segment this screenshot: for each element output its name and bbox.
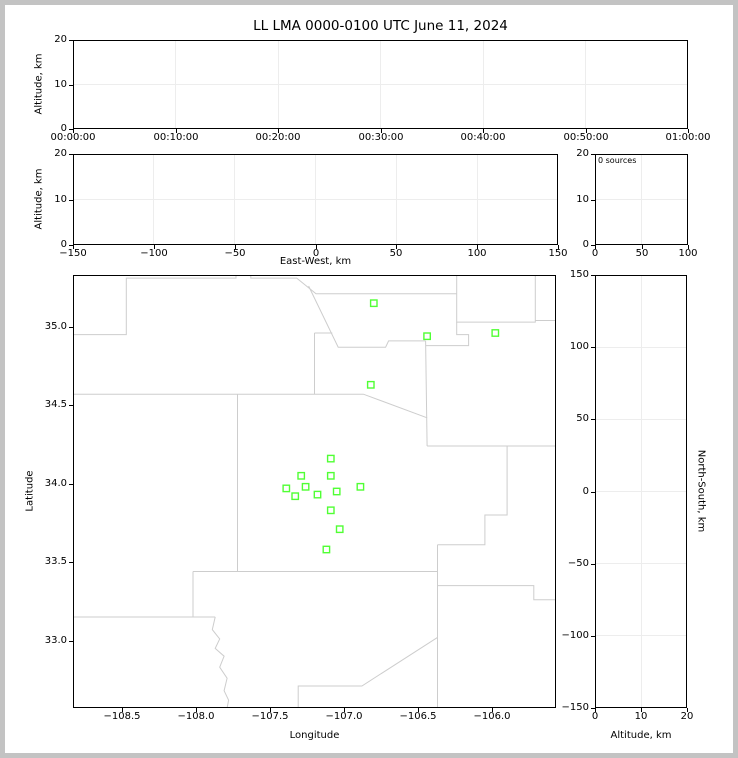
x-tick-label: 00:20:00	[244, 132, 312, 144]
y-tick	[69, 85, 73, 86]
y-tick	[591, 200, 595, 201]
y-tick-label: 150	[541, 269, 589, 281]
x-tick-label: −108.5	[88, 711, 156, 723]
map-xlabel: Longitude	[73, 730, 556, 741]
time_height-plot-area	[73, 40, 688, 129]
y-tick	[69, 245, 73, 246]
y-tick	[69, 327, 73, 328]
y-tick-label: 0	[19, 239, 67, 251]
y-tick	[591, 347, 595, 348]
x-tick-label: 20	[653, 711, 721, 723]
x-tick-label: 00:30:00	[347, 132, 415, 144]
x-tick-label: −108.0	[162, 711, 230, 723]
x-tick-label: 01:00:00	[654, 132, 722, 144]
x-tick-label: 0	[282, 248, 350, 260]
y-tick	[591, 708, 595, 709]
x-tick-label: −106.5	[384, 711, 452, 723]
y-tick-label: 35.0	[19, 321, 67, 333]
ns_height-plot-area	[595, 275, 687, 708]
y-tick-label: 33.0	[19, 635, 67, 647]
y-tick-label: 34.0	[19, 478, 67, 490]
x-tick-label: 100	[654, 248, 722, 260]
ns-panel-xlabel: Altitude, km	[595, 730, 687, 741]
x-tick-label: −100	[120, 248, 188, 260]
y-tick	[591, 636, 595, 637]
y-tick	[591, 154, 595, 155]
y-tick	[591, 564, 595, 565]
xlma-figure: LL LMA 0000-0100 UTC June 11, 2024 Altit…	[0, 0, 738, 758]
x-tick-label: −106.0	[458, 711, 526, 723]
ew_height-plot-area	[73, 154, 558, 245]
x-tick-label: 00:50:00	[552, 132, 620, 144]
y-tick	[69, 154, 73, 155]
y-tick-label: −100	[541, 630, 589, 642]
map-ylabel: Latitude	[25, 470, 36, 511]
y-tick-label: 20	[541, 148, 589, 160]
y-tick	[69, 129, 73, 130]
y-tick-label: 100	[541, 341, 589, 353]
x-tick-label: 50	[362, 248, 430, 260]
y-tick-label: 10	[19, 194, 67, 206]
y-tick	[591, 275, 595, 276]
y-tick-label: 10	[541, 194, 589, 206]
x-tick-label: −107.5	[236, 711, 304, 723]
height_histogram-plot-area	[595, 154, 688, 245]
y-tick	[69, 641, 73, 642]
figure-title: LL LMA 0000-0100 UTC June 11, 2024	[73, 18, 688, 34]
y-tick-label: 20	[19, 148, 67, 160]
ns-panel-ylabel: North-South, km	[696, 450, 707, 533]
y-tick	[69, 40, 73, 41]
y-tick	[591, 245, 595, 246]
x-tick-label: 100	[443, 248, 511, 260]
plan_map-plot-area	[73, 275, 556, 708]
y-tick-label: −50	[541, 558, 589, 570]
y-tick	[69, 484, 73, 485]
y-tick	[69, 405, 73, 406]
y-tick	[69, 562, 73, 563]
x-tick-label: −50	[201, 248, 269, 260]
y-tick	[591, 492, 595, 493]
y-tick	[69, 200, 73, 201]
y-tick-label: −150	[541, 702, 589, 714]
x-tick-label: 00:10:00	[142, 132, 210, 144]
x-tick-label: 00:40:00	[449, 132, 517, 144]
y-tick-label: 0	[541, 239, 589, 251]
y-tick-label: 50	[541, 413, 589, 425]
y-tick-label: 0	[19, 123, 67, 135]
y-tick-label: 20	[19, 34, 67, 46]
y-tick-label: 34.5	[19, 399, 67, 411]
x-tick-label: −107.0	[310, 711, 378, 723]
y-tick-label: 0	[541, 486, 589, 498]
y-tick-label: 33.5	[19, 556, 67, 568]
y-tick-label: 10	[19, 79, 67, 91]
y-tick	[591, 419, 595, 420]
